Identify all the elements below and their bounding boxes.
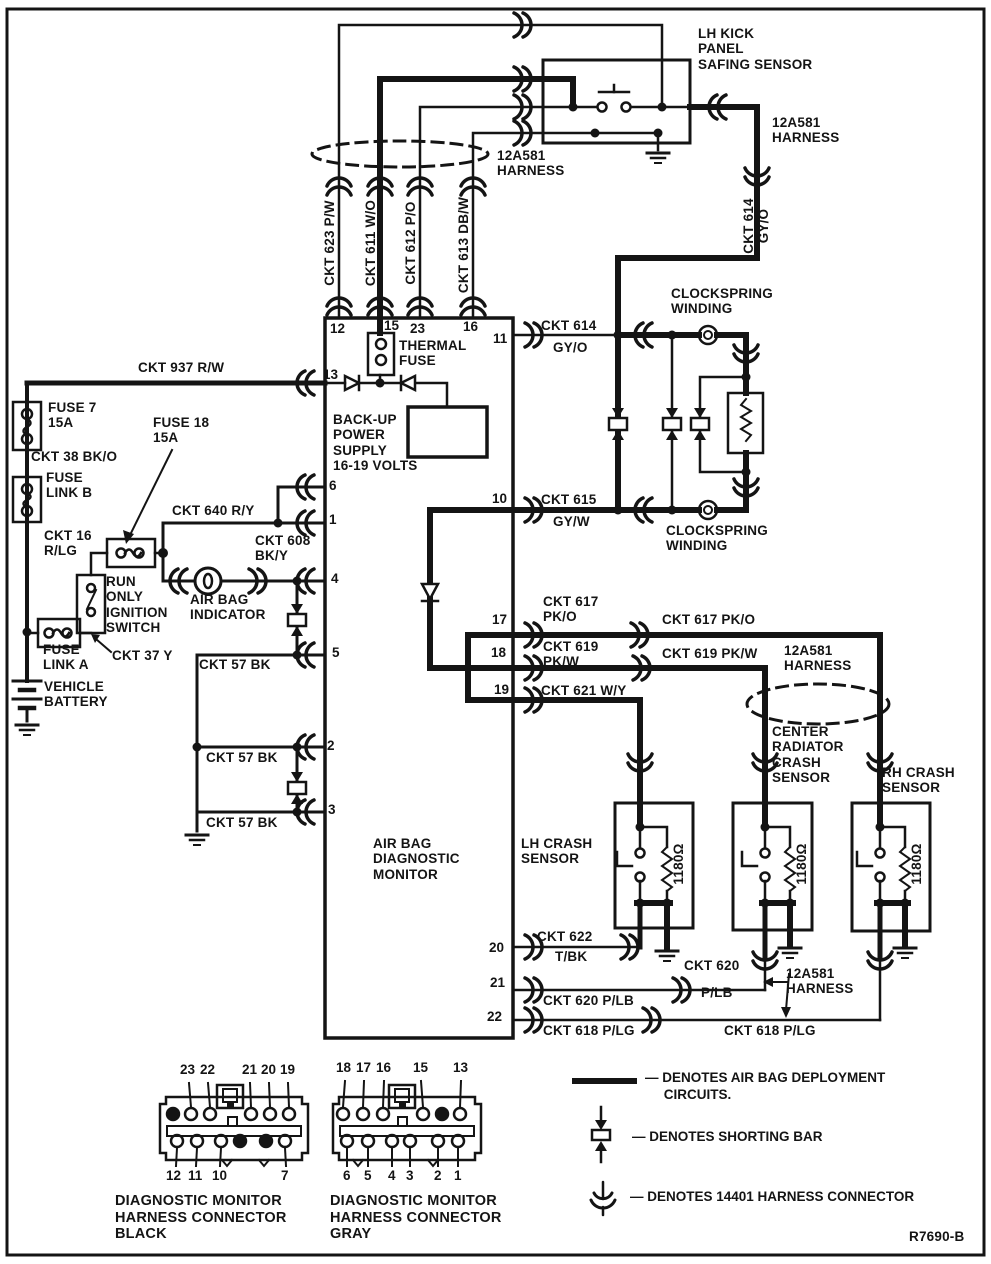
- pin-13: 13: [323, 367, 338, 382]
- backup-power-box: [408, 407, 487, 457]
- pin-4: 4: [331, 571, 339, 586]
- connector-gray-pin-17: 17: [356, 1060, 371, 1075]
- label-ckt619-pair: CKT 619 PK/W: [543, 639, 598, 670]
- label-fuse-link-a: FUSE LINK A: [43, 642, 89, 673]
- connector-gray-pin-5: 5: [364, 1168, 372, 1183]
- connector-black-pin-21: 21: [242, 1062, 257, 1077]
- pin-20: 20: [489, 940, 504, 955]
- label-ckt608: CKT 608 BK/Y: [255, 533, 310, 564]
- pin-3: 3: [328, 802, 336, 817]
- label-harness-top-mid: 12A581 HARNESS: [497, 148, 564, 179]
- label-ckt615-name: CKT 615: [541, 492, 596, 507]
- connector-gray-pin-4: 4: [388, 1168, 396, 1183]
- label-ckt38: CKT 38 BK/O: [31, 449, 117, 464]
- connector-black-pin-19: 19: [280, 1062, 295, 1077]
- label-ckt937: CKT 937 R/W: [138, 360, 224, 375]
- ignition-switch-symbol: [77, 553, 107, 633]
- pin-12: 12: [330, 321, 345, 336]
- legend-shorting-bar-text: — DENOTES SHORTING BAR: [632, 1129, 823, 1146]
- label-ckt620-color: P/LB: [701, 985, 733, 1000]
- label-ckt617-pair: CKT 617 PK/O: [543, 594, 598, 625]
- pin-15: 15: [384, 318, 399, 333]
- legend-shorting-bar-icon: [592, 1107, 610, 1162]
- label-ckt618-long-1: CKT 618 P/LG: [543, 1023, 635, 1038]
- connector-black-pin-10: 10: [212, 1168, 227, 1183]
- pin-22: 22: [487, 1009, 502, 1024]
- label-fuse-link-b: FUSE LINK B: [46, 470, 92, 501]
- label-ckt615-color: GY/W: [553, 514, 590, 529]
- label-ckt57-1: CKT 57 BK: [199, 657, 271, 672]
- fuse7-symbol: [13, 402, 41, 450]
- label-ckt617-long: CKT 617 PK/O: [662, 612, 755, 627]
- connector-black-pin-20: 20: [261, 1062, 276, 1077]
- label-clockspring-top: CLOCKSPRING WINDING: [671, 286, 773, 317]
- label-lh-crash: LH CRASH SENSOR: [521, 836, 592, 867]
- legend-harness-connector-icon: [591, 1182, 615, 1215]
- label-connector-black: DIAGNOSTIC MONITOR HARNESS CONNECTOR BLA…: [115, 1193, 287, 1243]
- pin-10: 10: [492, 491, 507, 506]
- connector-gray-pin-6: 6: [343, 1168, 351, 1183]
- label-ckt16: CKT 16 R/LG: [44, 528, 92, 559]
- fuse-link-b-symbol: [13, 477, 41, 522]
- label-1180-rh: 1180Ω: [877, 824, 957, 904]
- connector-black-pin-7: 7: [281, 1168, 289, 1183]
- label-harness-mid-right: 12A581 HARNESS: [784, 643, 851, 674]
- safing-sensor-box: [543, 60, 690, 143]
- legend-symbols: [575, 1081, 634, 1215]
- label-ckt37: CKT 37 Y: [112, 648, 173, 663]
- connector-black-pin-12: 12: [166, 1168, 181, 1183]
- pin-11: 11: [493, 331, 507, 346]
- label-1180-lh: 1180Ω: [639, 824, 719, 904]
- label-ckt614-color: GY/O: [553, 340, 588, 355]
- label-ckt57-2: CKT 57 BK: [206, 750, 278, 765]
- label-ckt640: CKT 640 R/Y: [172, 503, 254, 518]
- label-ckt620-name: CKT 620: [684, 958, 739, 973]
- label-fuse7: FUSE 7 15A: [48, 400, 96, 431]
- connector-gray-pin-3: 3: [406, 1168, 414, 1183]
- label-rh-crash: RH CRASH SENSOR: [882, 765, 955, 796]
- pin-18: 18: [491, 645, 506, 660]
- air-bag-indicator-symbol: [195, 568, 221, 594]
- label-air-bag-indicator: AIR BAG INDICATOR: [190, 592, 266, 623]
- pin-1: 1: [329, 512, 337, 527]
- connector-gray-pin-1: 1: [454, 1168, 462, 1183]
- pin-17: 17: [492, 612, 507, 627]
- label-run-only-ignition: RUN ONLY IGNITION SWITCH: [106, 574, 168, 635]
- label-clockspring-bottom: CLOCKSPRING WINDING: [666, 523, 768, 554]
- label-harness-top-right: 12A581 HARNESS: [772, 115, 839, 146]
- airbag-module-box: [728, 393, 763, 453]
- label-ckt618-long-2: CKT 618 P/LG: [724, 1023, 816, 1038]
- harness-ellipse-bottom: [747, 684, 889, 724]
- label-ckt614-name: CKT 614: [541, 318, 596, 333]
- label-ckt614-vertical: CKT 614 GY/O: [697, 166, 817, 286]
- connector-gray-pin-18: 18: [336, 1060, 351, 1075]
- label-ckt619-long: CKT 619 PK/W: [662, 646, 757, 661]
- label-ckt620-long: CKT 620 P/LB: [543, 993, 634, 1008]
- safing-sensor-switch: [543, 85, 690, 112]
- label-fuse18: FUSE 18 15A: [153, 415, 209, 446]
- pin-5: 5: [332, 645, 340, 660]
- label-monitor: AIR BAG DIAGNOSTIC MONITOR: [373, 836, 460, 882]
- connector-gray-pin-16: 16: [376, 1060, 391, 1075]
- connector-black-pin-22: 22: [200, 1062, 215, 1077]
- label-backup-power: BACK-UP POWER SUPPLY 16-19 VOLTS: [333, 412, 417, 473]
- label-ckt57-3: CKT 57 BK: [206, 815, 278, 830]
- connector-black-pin-11: 11: [188, 1168, 202, 1183]
- label-vehicle-battery: VEHICLE BATTERY: [44, 679, 108, 710]
- label-lh-kick-panel: LH KICK PANEL SAFING SENSOR: [698, 26, 812, 72]
- pin-6: 6: [329, 478, 337, 493]
- legend-harness-connector-text: — DENOTES 14401 HARNESS CONNECTOR: [630, 1189, 914, 1206]
- label-harness-bottom: 12A581 HARNESS: [786, 966, 853, 997]
- pin-16: 16: [463, 319, 478, 334]
- connector-gray-pin-15: 15: [413, 1060, 428, 1075]
- connector-black-pin-23: 23: [180, 1062, 195, 1077]
- pin-2: 2: [327, 738, 335, 753]
- connector-black-drawing: [160, 1083, 308, 1166]
- pin-19: 19: [494, 682, 509, 697]
- pin-23: 23: [410, 321, 425, 336]
- wiring-diagram-page: LH KICK PANEL SAFING SENSOR 12A581 HARNE…: [0, 0, 991, 1264]
- connector-gray-pin-13: 13: [453, 1060, 468, 1075]
- label-thermal-fuse: THERMAL FUSE: [399, 338, 466, 369]
- label-center-radiator: CENTER RADIATOR CRASH SENSOR: [772, 724, 844, 785]
- label-reference-number: R7690-B: [909, 1229, 964, 1244]
- ckt621-wire: [513, 700, 640, 803]
- label-connector-gray: DIAGNOSTIC MONITOR HARNESS CONNECTOR GRA…: [330, 1193, 502, 1243]
- connector-gray-drawing: [333, 1081, 481, 1166]
- label-ckt613: CKT 613 DB/W: [404, 185, 524, 305]
- internal-diode: [422, 584, 438, 601]
- label-ckt622-name: CKT 622: [537, 929, 592, 944]
- fuse18-symbol: [107, 539, 163, 567]
- label-ckt621: CKT 621 W/Y: [541, 683, 626, 698]
- module-resistor: [741, 399, 751, 441]
- vehicle-battery-symbol: [13, 681, 41, 721]
- connector-gray-pin-2: 2: [434, 1168, 442, 1183]
- legend-deployment-text: — DENOTES AIR BAG DEPLOYMENT CIRCUITS.: [645, 1070, 885, 1104]
- pin-21: 21: [490, 975, 505, 990]
- monitor-pin13-diodes: [325, 376, 447, 407]
- label-ckt622-color: T/BK: [555, 949, 587, 964]
- label-1180-center: 1180Ω: [762, 824, 842, 904]
